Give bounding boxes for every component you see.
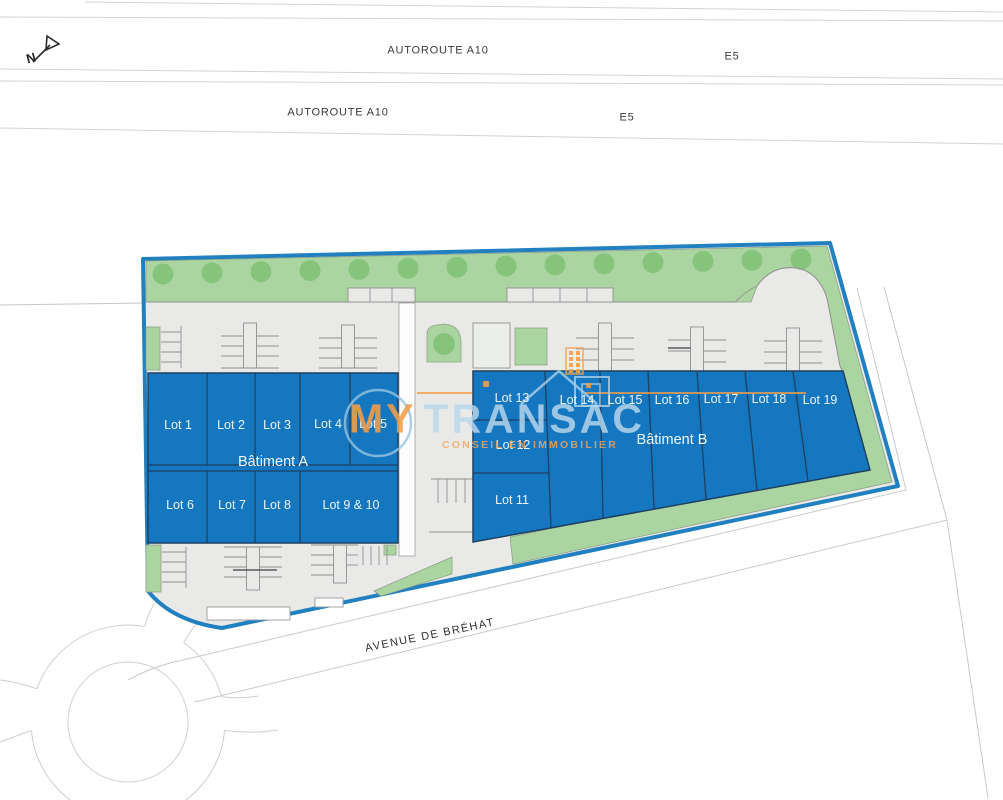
roundabout: [0, 604, 278, 800]
motorway-ref-2: E5: [619, 113, 634, 124]
lot-17-zone[interactable]: Lot 17: [704, 393, 739, 406]
lot-11-zone[interactable]: Lot 11: [495, 494, 529, 507]
lot-9-10-zone[interactable]: Lot 9 & 10: [323, 499, 380, 512]
lot-19-zone[interactable]: Lot 19: [803, 394, 838, 407]
access-lane: [399, 303, 415, 556]
lot-8-zone[interactable]: Lot 8: [263, 499, 291, 512]
lot-2-zone[interactable]: Lot 2: [217, 419, 245, 432]
lot-18-zone[interactable]: Lot 18: [752, 393, 787, 406]
site-plan-page: N AUTOROUTE A10 E5 AUTOROUTE A10 E5 AVEN…: [0, 0, 1003, 800]
lot-7-zone[interactable]: Lot 7: [218, 499, 246, 512]
motorway-label-2: AUTOROUTE A10: [287, 108, 388, 119]
motorway-ref-1: E5: [724, 52, 739, 63]
lot-12-zone[interactable]: Lot 12: [496, 439, 531, 452]
lot-5-zone[interactable]: Lot 5: [359, 418, 387, 431]
north-arrow-icon: [33, 36, 59, 62]
lot-4-zone[interactable]: Lot 4: [314, 418, 342, 431]
batiment-a-label: Bâtiment A: [238, 455, 308, 470]
batiment-b-label: Bâtiment B: [637, 433, 708, 448]
motorway-label-1: AUTOROUTE A10: [387, 46, 488, 57]
tree-icon: [433, 333, 455, 355]
lot-13-zone[interactable]: Lot 13: [495, 392, 530, 405]
lot-16-zone[interactable]: Lot 16: [655, 394, 690, 407]
lot-14-zone[interactable]: Lot 14: [560, 394, 595, 407]
lot-3-zone[interactable]: Lot 3: [263, 419, 291, 432]
lot-1-zone[interactable]: Lot 1: [164, 419, 192, 432]
lot-6-zone[interactable]: Lot 6: [166, 499, 194, 512]
lot-15-zone[interactable]: Lot 15: [608, 394, 643, 407]
